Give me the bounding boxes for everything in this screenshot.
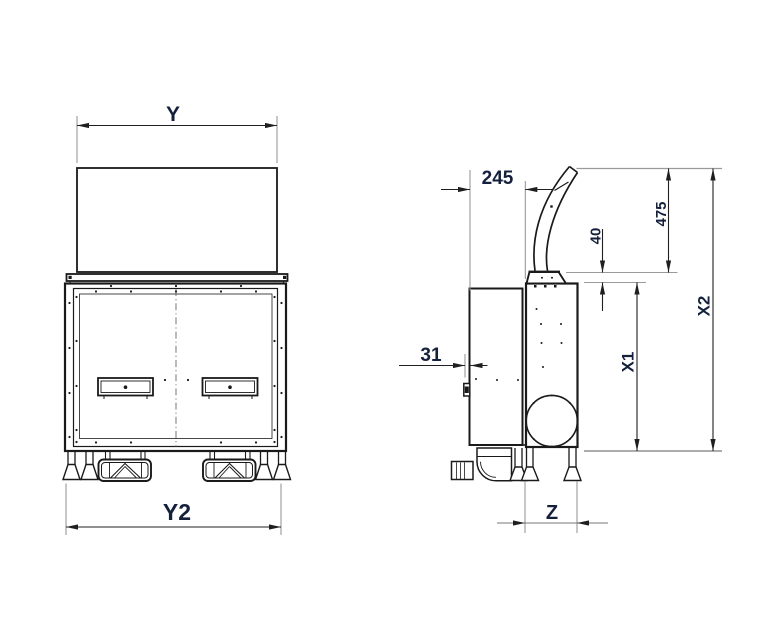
dimension-40: 40 (588, 228, 606, 311)
front-slot-left (98, 378, 153, 399)
side-flue-collar (527, 272, 567, 284)
dim-label-y: Y (166, 103, 180, 126)
front-damper-box-left (99, 460, 152, 482)
front-damper-box-right (203, 460, 256, 482)
dim-label-x1: X1 (619, 352, 638, 373)
dim-label-x2: X2 (695, 296, 714, 317)
front-body-outer (65, 284, 286, 452)
dim-label-40: 40 (588, 228, 605, 245)
front-view (63, 168, 291, 481)
dim-label-475: 475 (653, 201, 670, 226)
dim-label-245: 245 (482, 168, 514, 189)
front-hood (77, 168, 277, 272)
dim-label-y2: Y2 (163, 499, 191, 525)
side-body (526, 284, 578, 448)
front-top-plate (67, 274, 288, 281)
dimension-x2: X2 (695, 169, 716, 452)
front-slot-right (203, 378, 258, 399)
dimension-y2: Y2 (66, 484, 281, 536)
dim-label-31: 31 (420, 345, 442, 366)
side-legs (510, 447, 581, 480)
side-door-latch (464, 384, 470, 397)
side-view (452, 167, 582, 481)
drawing-svg: Y Y2 (0, 0, 782, 640)
technical-drawing-canvas: Y Y2 (0, 0, 782, 640)
front-damper-connectors (106, 451, 251, 460)
dimension-475: 475 (653, 169, 671, 273)
dimension-z: Z (497, 481, 608, 533)
dimension-y: Y (77, 103, 277, 163)
dimension-x1: X1 (619, 283, 640, 452)
dim-label-z: Z (546, 502, 558, 524)
side-flue-pipe (534, 167, 578, 271)
